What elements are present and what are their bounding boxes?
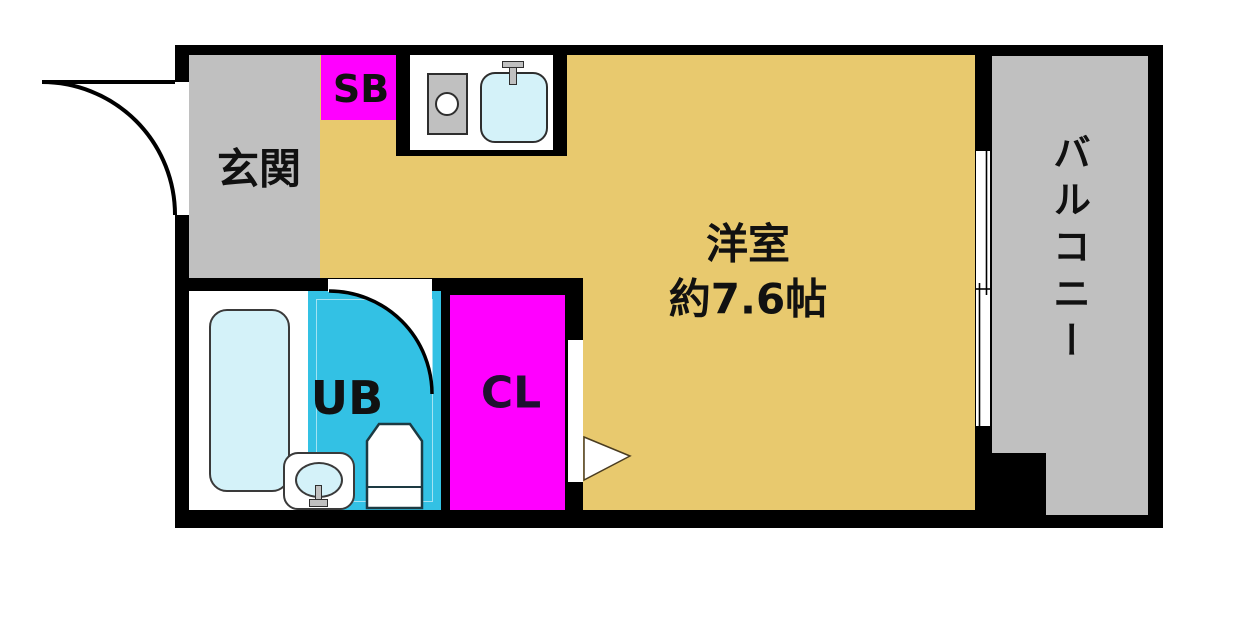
shoe-box-label: SB	[333, 67, 389, 111]
balcony-label: バルコニー	[1042, 133, 1097, 368]
genkan-label: 玄関	[217, 136, 301, 197]
closet-label: CL	[481, 368, 541, 419]
bathtub-icon	[209, 309, 290, 492]
closet-door-opening	[568, 340, 583, 482]
entrance-door-icon	[42, 82, 175, 215]
main-room-size: 約7.6帖	[669, 272, 827, 327]
balcony-area-lower	[1046, 453, 1148, 515]
stove-burner-icon	[435, 92, 459, 116]
unit-bath-label: UB	[311, 371, 383, 425]
kitchen-faucet-stem	[509, 67, 517, 85]
washbasin-faucet-icon	[309, 499, 328, 507]
unit-bath-door-opening	[328, 279, 432, 292]
entrance-door-opening	[175, 82, 189, 215]
main-room-name: 洋室	[669, 217, 827, 272]
floor-plan: 玄関 SB UB CL 洋室 約7.6帖 バルコニー	[0, 0, 1251, 619]
sliding-window-icon	[976, 151, 990, 426]
main-room-label: 洋室 約7.6帖	[669, 217, 827, 326]
